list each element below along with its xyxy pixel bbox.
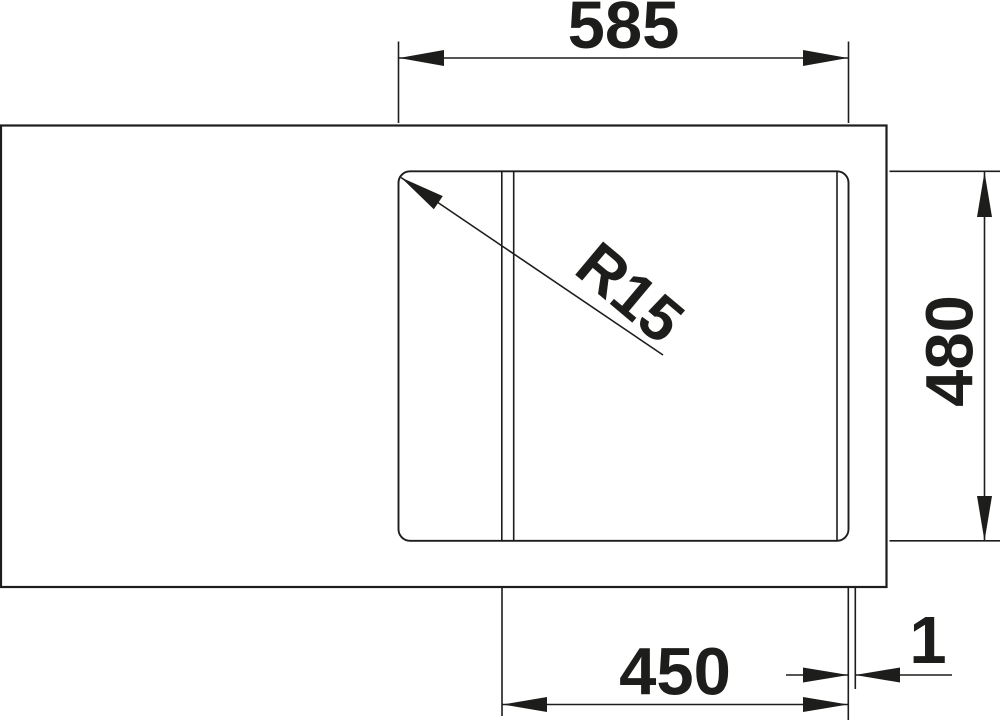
svg-text:450: 450	[619, 635, 731, 710]
svg-text:R15: R15	[563, 229, 697, 357]
svg-text:585: 585	[568, 0, 680, 63]
svg-text:1: 1	[909, 603, 946, 678]
svg-text:480: 480	[913, 295, 988, 407]
